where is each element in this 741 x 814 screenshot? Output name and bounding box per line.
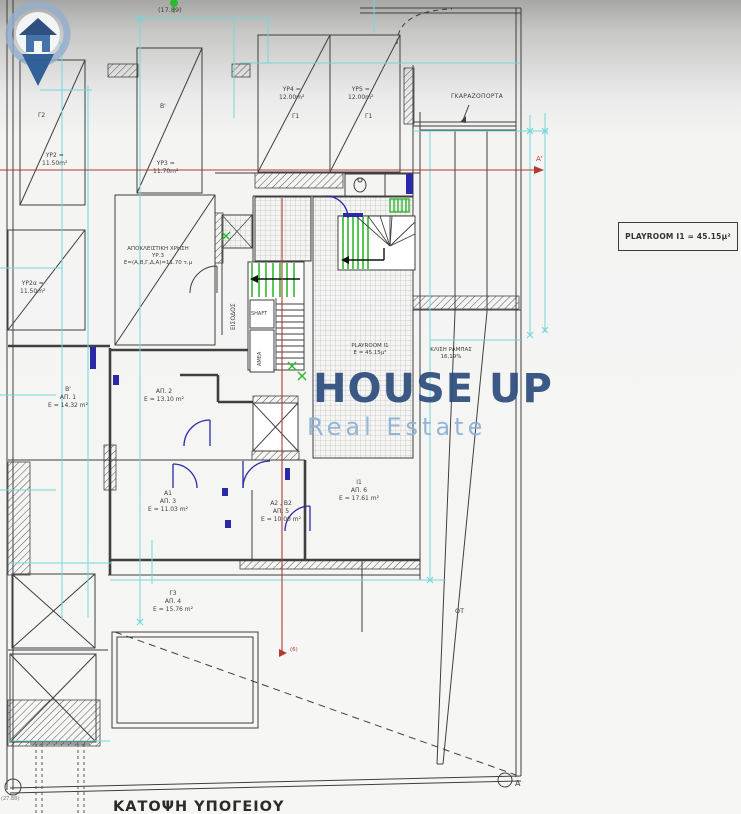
room-area: Ε = 11.03 m² — [138, 506, 198, 514]
exclusive-use-line2: ΥΡ.3 — [108, 253, 208, 260]
section-marker-a-bottom: Α — [515, 779, 520, 789]
room-label-ap3: Α1 ΑΠ. 3 Ε = 11.03 m² — [138, 490, 198, 513]
watermark-title: HOUSE UP — [313, 366, 553, 412]
room-name: ΑΠ. 5 — [250, 508, 312, 516]
parking-label: ΥΡ5 = 12.00m² — [348, 86, 373, 102]
room-area: Ε = 15.76 m² — [143, 606, 203, 614]
parking-name: ΥΡ2 = — [42, 152, 67, 160]
room-name: ΑΠ. 1 — [38, 394, 98, 402]
amea-label: ΑΜΕΑ — [257, 352, 264, 366]
ramp-slope-text: ΚΛΙΣΗ ΡΑΜΠΑΣ — [426, 347, 476, 354]
parking-label: ΥΡ3 = 11.70m² — [153, 160, 178, 176]
parking-label: ΥΡ4 = 12.00m² — [279, 86, 304, 102]
parking-label: ΥΡ2α = 11.50m² — [20, 280, 45, 296]
room-area: Ε = 14.32 m² — [38, 402, 98, 410]
parking-area: 11.50m² — [20, 288, 45, 296]
parking-name: ΥΡ2α = — [20, 280, 45, 288]
parking-name: ΥΡ5 = — [348, 86, 373, 94]
parking-code: Γ2 — [38, 112, 45, 120]
room-code: Α1 — [138, 490, 198, 498]
room-label-ap6: Ι1 ΑΠ. 6 Ε = 17.61 m² — [328, 479, 390, 502]
ramp-slope-value: 16,19% — [426, 354, 476, 361]
section-marker-6: (6) — [290, 647, 298, 654]
parking-label: ΥΡ2 = 11.50m² — [42, 152, 67, 168]
room-area: Ε = 13.10 m² — [134, 396, 194, 404]
room-name: ΑΠ. 4 — [143, 598, 203, 606]
parking-area: 12.00m² — [348, 94, 373, 102]
room-label-ap1: Β' ΑΠ. 1 Ε = 14.32 m² — [38, 386, 98, 409]
room-label-ap5: Α2 , Β2 ΑΠ. 5 Ε = 10.00 m² — [250, 500, 312, 523]
room-code: Γ3 — [143, 590, 203, 598]
parking-code: Γ1 — [365, 113, 372, 121]
room-code: Ι1 — [328, 479, 390, 487]
room-area: Ε = 10.00 m² — [250, 516, 312, 524]
section-marker-a-top: Α' — [536, 155, 543, 164]
garage-door-label: ΓΚΑΡΑΖΟΠΟΡΤΑ — [451, 93, 503, 101]
parking-area: 12.00m² — [279, 94, 304, 102]
parking-area: 11.50m² — [42, 160, 67, 168]
exclusive-use-label: ΑΠΟΚΛΕΙΣΤΙΚΗ ΧΡΗΣΗ ΥΡ.3 Ε=(Α,Β,Γ,Δ,Α)=11… — [108, 246, 208, 267]
parking-name: ΥΡ4 = — [279, 86, 304, 94]
room-name: ΑΠ. 2 — [134, 388, 194, 396]
page-title: ΚΑΤΟΨΗ ΥΠΟΓΕΙΟΥ — [113, 799, 285, 814]
shaft-label: SHAFT — [251, 311, 267, 318]
parking-area: 11.70m² — [153, 168, 178, 176]
parking-name: ΥΡ3 = — [153, 160, 178, 168]
main-staircase — [338, 213, 415, 270]
entrance-label: ΕΙΣΟΔΟΣ — [230, 303, 238, 330]
playroom-area: Ε = 45.15μ² — [340, 350, 400, 357]
room-name: ΑΠ. 3 — [138, 498, 198, 506]
parking-code: Β' — [160, 103, 166, 111]
watermark-subtitle: Real Estate — [307, 413, 486, 441]
playroom-info-box: PLAYROOM Ι1 = 45.15μ² — [618, 222, 738, 251]
elevation-note: (17.89) — [158, 6, 182, 14]
room-name: ΑΠ. 6 — [328, 487, 390, 495]
floor-plan-page: (17.89) ΓΚΑΡΑΖΟΠΟΡΤΑ Γ2 ΥΡ2 = 11.50m² Β'… — [0, 0, 741, 814]
corner-note: (27.88) — [1, 796, 19, 802]
exclusive-use-line1: ΑΠΟΚΛΕΙΣΤΙΚΗ ΧΡΗΣΗ — [108, 246, 208, 253]
parking-code: Γ1 — [292, 113, 299, 121]
block-label: ΟΤ — [455, 607, 464, 615]
house-up-pin-icon — [0, 0, 76, 92]
ramp-slope-label: ΚΛΙΣΗ ΡΑΜΠΑΣ 16,19% — [426, 347, 476, 361]
playroom-inline-label: PLAYROOM Ι1 Ε = 45.15μ² — [340, 343, 400, 357]
room-code: Α2 , Β2 — [250, 500, 312, 508]
room-area: Ε = 17.61 m² — [328, 495, 390, 503]
room-label-ap2: ΑΠ. 2 Ε = 13.10 m² — [134, 388, 194, 404]
playroom-info-text: PLAYROOM Ι1 = 45.15μ² — [625, 232, 731, 241]
exclusive-use-line3: Ε=(Α,Β,Γ,Δ,Α)=11.70 τ.μ — [108, 260, 208, 267]
room-label-ap4: Γ3 ΑΠ. 4 Ε = 15.76 m² — [143, 590, 203, 613]
room-code: Β' — [38, 386, 98, 394]
